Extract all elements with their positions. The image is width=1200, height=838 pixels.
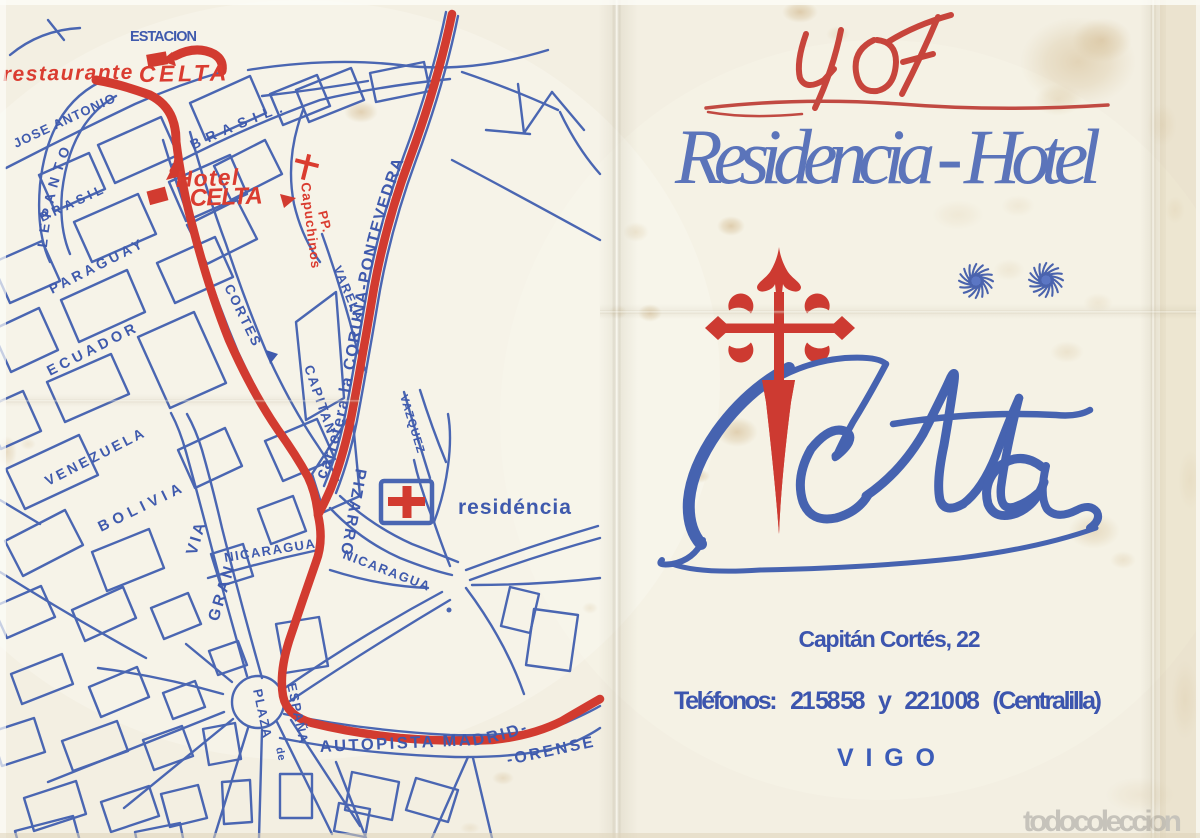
svg-text:Capitán Cortés, 22: Capitán Cortés, 22 [799,626,982,652]
svg-text:Residencia - Hotel: Residencia - Hotel [674,113,1101,200]
svg-text:V I G O: V I G O [837,744,939,772]
svg-text:CELTA: CELTA [139,59,228,87]
svg-text:residéncia: residéncia [458,496,572,519]
svg-text:restaurante: restaurante [3,61,133,86]
svg-text:Teléfonos: 21 58 58 y 22 10: Teléfonos: 21 58 58 y 22 10 08 (Centrali… [674,687,1102,715]
svg-text:CELTA: CELTA [189,182,264,212]
svg-text:ESTACION: ESTACION [130,29,198,45]
